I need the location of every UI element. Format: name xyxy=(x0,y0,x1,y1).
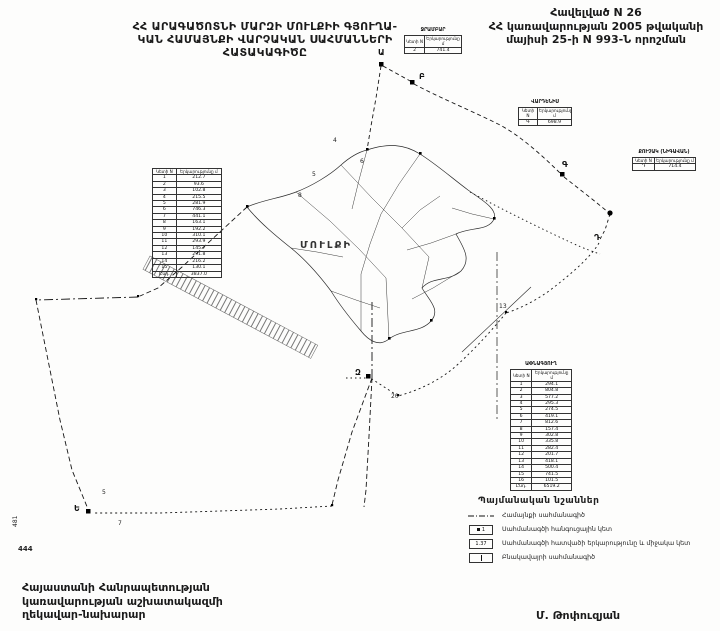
length-cell: 741.4 xyxy=(425,47,462,53)
column-header-length: Երկարությունը մ xyxy=(532,370,572,382)
column-header-point: Կետի N xyxy=(153,169,177,175)
column-header-length: Երկարությունը մ xyxy=(425,36,462,48)
point-cell: Գ xyxy=(519,119,538,125)
table-title: ՋՐԱՄԲԱՐ xyxy=(404,28,462,34)
annex-line: Հավելված N 26 xyxy=(475,6,717,20)
point-number: 6 xyxy=(360,158,364,165)
table-title: ՎԱՐԴԵՆԻՍ xyxy=(518,100,572,106)
table-row: Դ 714.4 xyxy=(633,164,696,170)
point-number: 20 xyxy=(391,393,399,400)
point-cell: 2 xyxy=(405,47,425,53)
settlement-boundary xyxy=(247,145,531,352)
column-header-length: Երկարությունը մ xyxy=(654,158,695,164)
point-label-a: Ա xyxy=(378,48,385,57)
column-header-point: Կետի N xyxy=(633,158,655,164)
legend-item-node: 1 Սահմանագծի հանգուցային կետ xyxy=(466,524,701,535)
margin-vertical-number: 481 xyxy=(12,516,19,527)
signature-name: Մ. Թոփուզյան xyxy=(536,609,620,622)
point-number: 13 xyxy=(499,303,507,310)
village-label: ՄՈՒԼՔԻ xyxy=(300,240,352,251)
footer-line: ղեկավար-նախարար xyxy=(22,608,223,622)
column-header-length: Երկարությունը մ xyxy=(537,108,571,120)
point-cell: Դ xyxy=(633,164,655,170)
cadastral-map-page: ՀՀ ԱՐԱԳԱԾՈՏՆԻ ՄԱՐԶԻ ՄՈՒԼՔԻԻ ԳՅՈՒՂԱ- ԿԱՆ … xyxy=(0,0,720,631)
table-row: Գ 698.9 xyxy=(519,119,572,125)
point-number: 5 xyxy=(312,171,316,178)
margin-number: 444 xyxy=(18,545,33,553)
annex-heading: Հավելված N 26 ՀՀ կառավարության 2005 թվակ… xyxy=(475,6,717,47)
node-point-icon: 1 xyxy=(466,525,496,535)
footer-line: Հայաստանի Հանրապետության xyxy=(22,581,223,595)
table-row: Ընդ. 3837.0 xyxy=(153,271,222,277)
length-cell: 714.4 xyxy=(654,164,695,170)
point-cell: Ընդ. xyxy=(511,484,532,490)
point-number: 5 xyxy=(102,489,106,496)
title-line: ՀՀ ԱՐԱԳԱԾՈՏՆԻ ՄԱՐԶԻ ՄՈՒԼՔԻԻ ԳՅՈՒՂԱ- xyxy=(100,20,430,33)
point-label-z: Զ xyxy=(355,368,361,377)
node-number: 1 xyxy=(482,527,485,533)
legend-title: Պայմանական նշաններ xyxy=(478,496,701,506)
footer-line: կառավարության աշխատակազմի xyxy=(22,595,223,609)
title-line: ԿԱՆ ՀԱՄԱՅՆՔԻ ՎԱՐՉԱԿԱՆ ՍԱՀՄԱՆՆԵՐԻ xyxy=(100,33,430,46)
legend-label: Համայնքի սահմանագիծ xyxy=(502,512,585,519)
table-far-right: ՔՈՒՉԱԿ (ՆԻԳԱՎԱՆ) Կետի N Երկարությունը մ … xyxy=(632,150,696,171)
segment-length-icon: 1.37 xyxy=(466,539,496,549)
column-header-point: Կետի N xyxy=(405,36,425,48)
table-right-upper: ՎԱՐԴԵՆԻՍ Կետի N Երկարությունը մ Գ 698.9 xyxy=(518,100,572,126)
table-top: ՋՐԱՄԲԱՐ Կետի N Երկարությունը մ 2 741.4 xyxy=(404,28,462,54)
point-label-d: Դ xyxy=(594,233,600,242)
signatory-title: Հայաստանի Հանրապետության կառավարության ա… xyxy=(22,581,223,622)
table-row: Ընդ. 6519.2 xyxy=(511,484,572,490)
length-value: 1.37 xyxy=(475,541,486,547)
legend-item-boundary: Համայնքի սահմանագիծ xyxy=(466,510,701,521)
legend-item-length: 1.37 Սահմանագծի հատվածի երկարությունը և … xyxy=(466,538,701,549)
length-cell: 698.9 xyxy=(537,119,571,125)
annex-line: ՀՀ կառավարության 2005 թվականի xyxy=(475,20,717,34)
length-cell: 3837.0 xyxy=(176,271,221,277)
legend-label: Բնակավայրի սահմանագիծ xyxy=(502,554,595,561)
settlement-line-icon xyxy=(466,553,496,563)
dash-line-icon xyxy=(466,513,496,519)
point-label-e: Ե xyxy=(74,504,80,513)
legend: Պայմանական նշաններ Համայնքի սահմանագիծ 1… xyxy=(466,496,701,563)
table-title: ՔՈՒՉԱԿ (ՆԻԳԱՎԱՆ) xyxy=(632,150,696,156)
legend-item-settlement: Բնակավայրի սահմանագիծ xyxy=(466,552,701,563)
column-header-point: Կետի N xyxy=(519,108,538,120)
point-label-b: Բ xyxy=(419,72,425,81)
point-label-g: Գ xyxy=(562,160,568,169)
table-left: Կետի N Երկարությունը մ 1 212.7 2 93.6 3 … xyxy=(152,168,222,278)
legend-label: Սահմանագծի հատվածի երկարությունը և միջակ… xyxy=(502,540,690,547)
point-number: 7 xyxy=(118,520,122,527)
table-bottom-right: ԱՓՆԱԳՅՈՒՂ Կետի N Երկարությունը մ 1 294.1… xyxy=(510,362,572,491)
column-header-point: Կետի N xyxy=(511,370,532,382)
point-cell: Ընդ. xyxy=(153,271,177,277)
legend-label: Սահմանագծի հանգուցային կետ xyxy=(502,526,612,533)
length-cell: 6519.2 xyxy=(532,484,572,490)
point-number: 8 xyxy=(298,192,302,199)
column-header-length: Երկարությունը մ xyxy=(176,169,221,175)
annex-line: մայիսի 25-ի N 993-Ն որոշման xyxy=(475,33,717,47)
point-number: 4 xyxy=(333,137,337,144)
table-title: ԱՓՆԱԳՅՈՒՂ xyxy=(510,362,572,368)
table-row: 2 741.4 xyxy=(405,47,462,53)
